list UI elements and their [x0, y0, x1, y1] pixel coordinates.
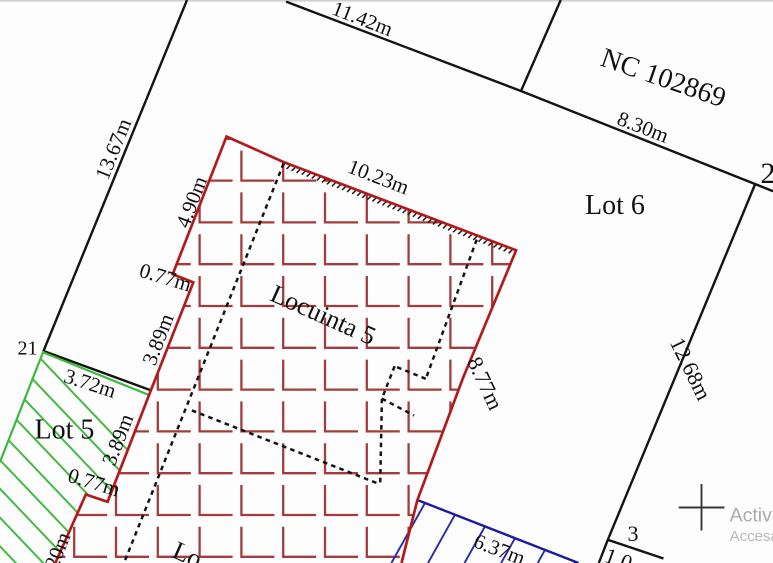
svg-text:2: 2: [761, 157, 773, 190]
svg-text:Lot 6: Lot 6: [585, 190, 645, 221]
svg-text:Lot 5: Lot 5: [35, 415, 95, 446]
svg-text:3: 3: [628, 521, 639, 546]
svg-text:Activate Win: Activate Win: [730, 505, 773, 527]
svg-text:21: 21: [18, 338, 38, 360]
svg-text:Accesați Set: Accesați Set: [730, 528, 773, 545]
